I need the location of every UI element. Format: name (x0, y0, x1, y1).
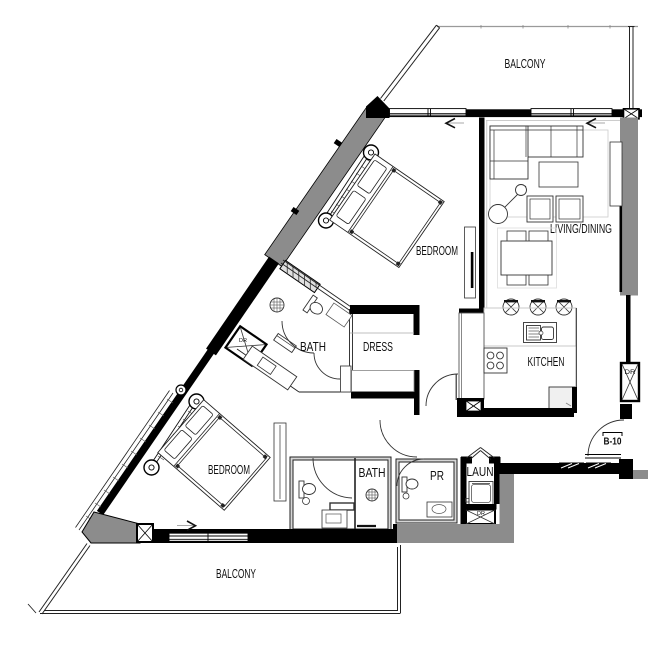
svg-text:DR: DR (625, 370, 637, 376)
svg-text:B-10: B-10 (604, 437, 622, 448)
svg-text:BATH: BATH (300, 340, 326, 354)
svg-text:KITCHEN: KITCHEN (528, 355, 565, 369)
svg-text:LIVING/DINING: LIVING/DINING (550, 222, 612, 236)
svg-text:DRESS: DRESS (363, 340, 393, 354)
svg-text:BATH: BATH (359, 466, 386, 480)
svg-text:LAUN: LAUN (467, 465, 494, 479)
svg-text:DR: DR (477, 511, 485, 517)
svg-text:DR: DR (239, 338, 247, 344)
svg-text:BALCONY: BALCONY (216, 567, 256, 581)
svg-text:PR: PR (430, 469, 444, 483)
svg-text:BEDROOM: BEDROOM (208, 463, 250, 477)
svg-text:BEDROOM: BEDROOM (416, 244, 458, 258)
svg-text:BALCONY: BALCONY (505, 57, 546, 71)
